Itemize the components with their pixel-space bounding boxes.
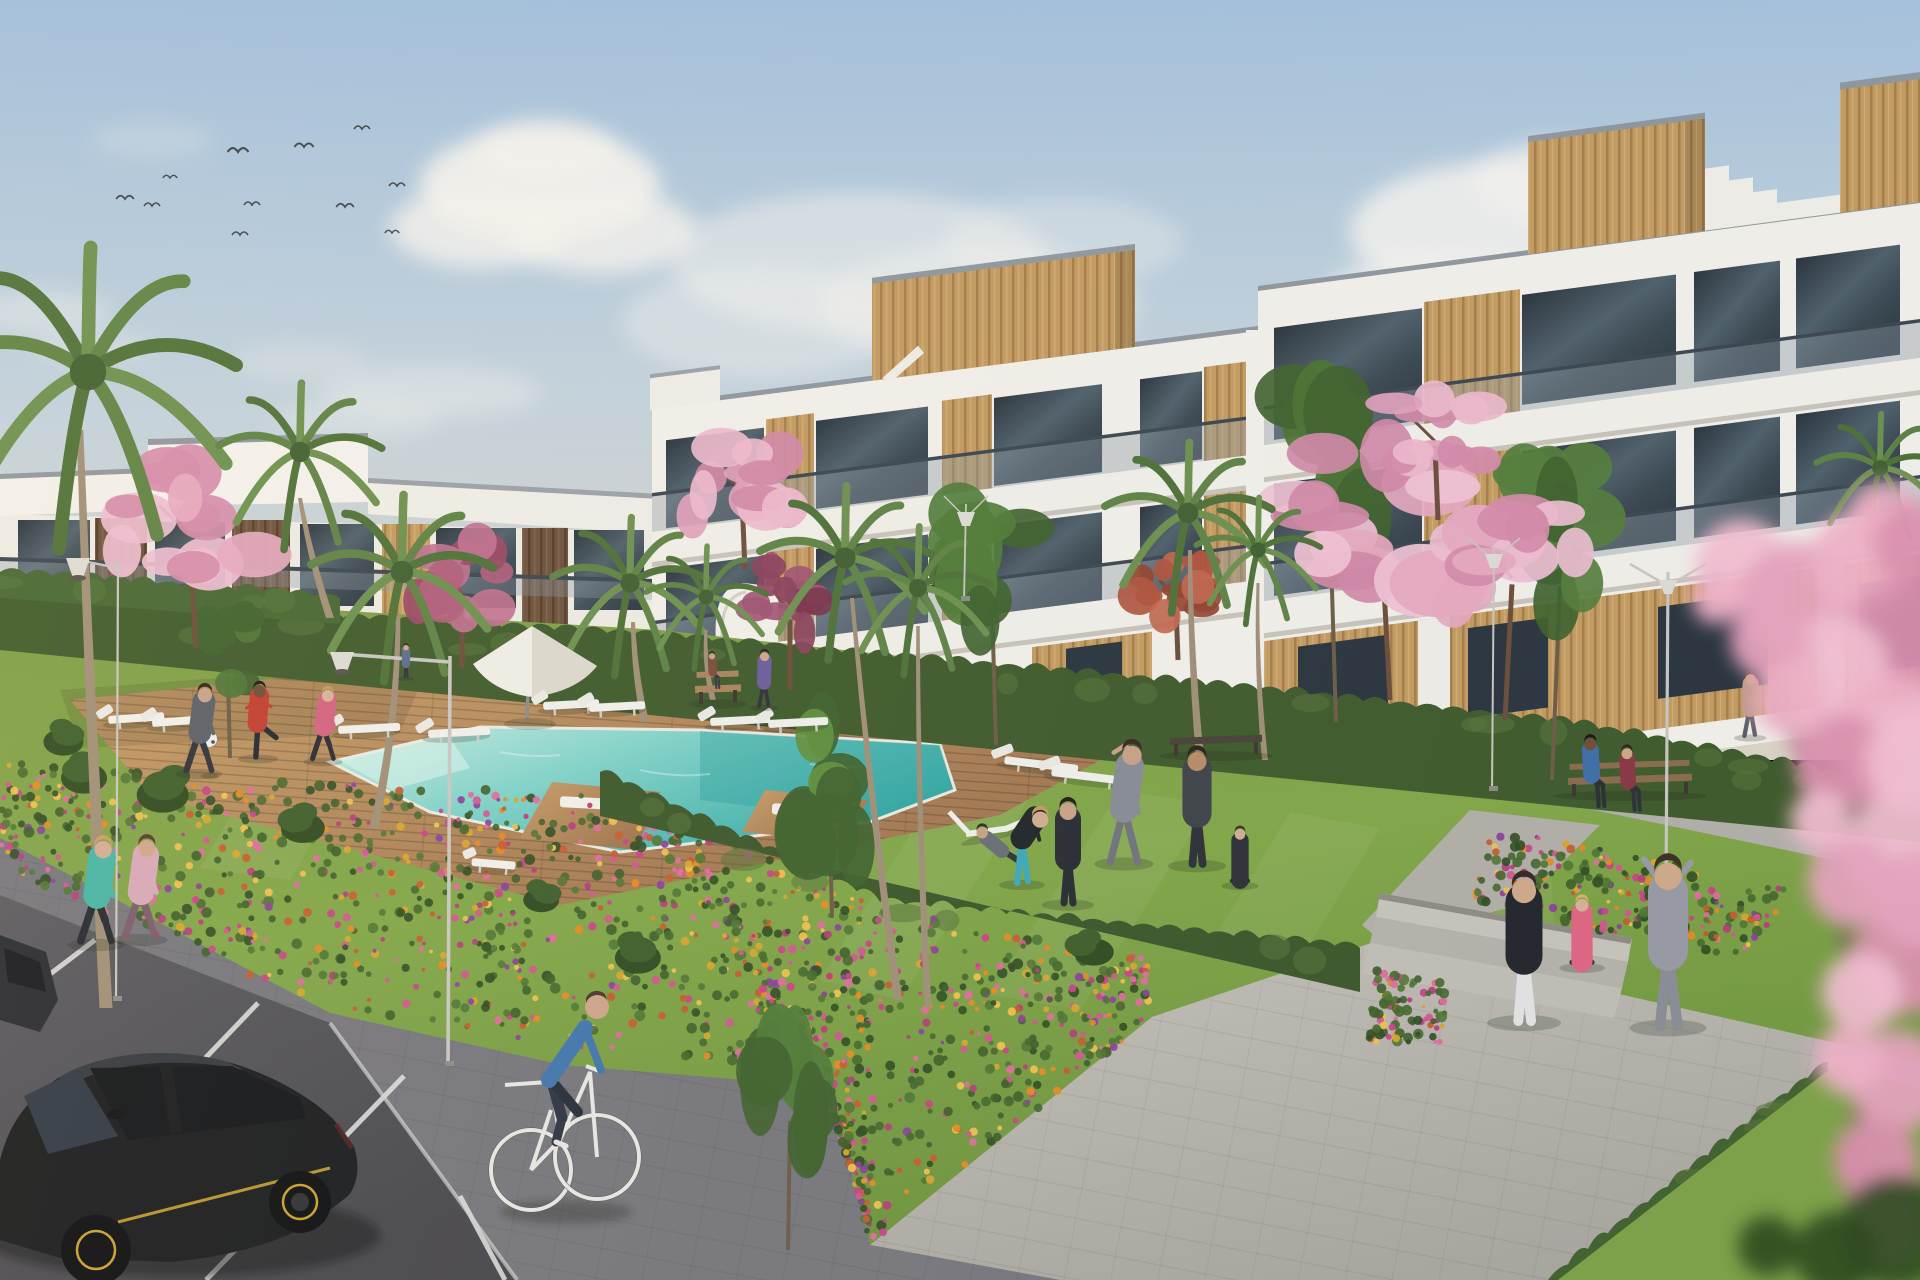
blurred-blossom	[1790, 790, 1850, 850]
blurred-blossom	[1740, 560, 1796, 616]
color-grade	[0, 0, 1920, 1280]
blurred-blossom	[1754, 664, 1826, 736]
scene-render	[0, 0, 1920, 1280]
render-stage	[0, 0, 1920, 1280]
blurred-blossom	[1692, 576, 1740, 624]
blurred-blossom	[1814, 1026, 1882, 1094]
blurred-leaves	[1738, 1216, 1798, 1276]
blurred-blossom	[1822, 952, 1902, 1032]
